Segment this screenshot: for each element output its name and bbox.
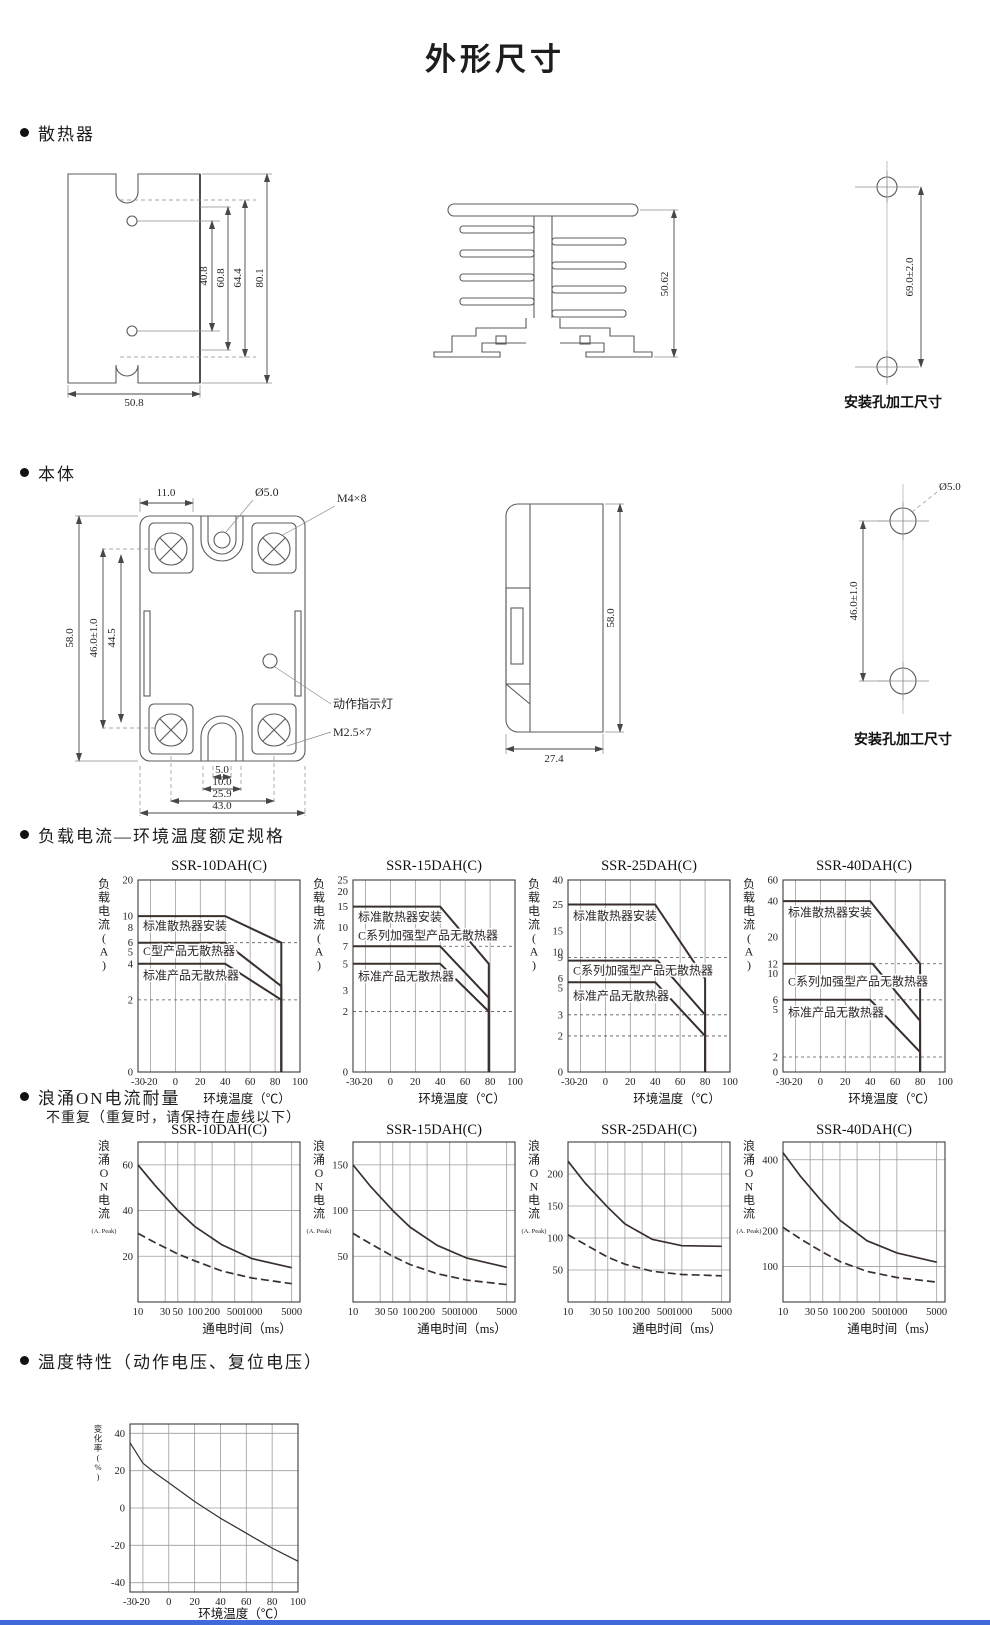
y-tick-label: 20	[123, 876, 134, 887]
x-tick-label: 80	[700, 1077, 711, 1088]
x-tick-label: 5000	[496, 1307, 517, 1318]
y-tick-label: 40	[123, 1206, 134, 1217]
page-bottom-border	[0, 1620, 990, 1625]
x-tick-label: 1000	[241, 1307, 262, 1318]
x-tick-label: 100	[402, 1307, 418, 1318]
y-axis-label-char: (	[97, 1453, 100, 1463]
bullet-icon	[20, 1356, 29, 1365]
x-tick-label: 500	[442, 1307, 458, 1318]
page-title: 外形尺寸	[0, 34, 990, 79]
y-axis-label-char: 流	[528, 918, 540, 932]
y-tick-label: 150	[547, 1202, 563, 1213]
x-tick-label: 100	[187, 1307, 203, 1318]
x-tick-label: -20	[136, 1597, 150, 1608]
x-tick-label: 80	[270, 1077, 281, 1088]
y-tick-label: 40	[553, 876, 564, 887]
y-tick-label: 10	[338, 923, 349, 934]
y-axis-label-char: 流	[743, 918, 755, 932]
x-tick-label: 200	[634, 1307, 650, 1318]
y-axis-label-char: )	[532, 958, 536, 972]
series-label: 标准散热器安装	[143, 918, 227, 933]
x-axis-label: 环境温度（℃）	[198, 1606, 286, 1621]
y-axis-label-char: 化	[94, 1434, 103, 1444]
dim-58-0: 58.0	[64, 628, 76, 648]
x-tick-label: 30	[590, 1307, 601, 1318]
section-load: 负载电流—环境温度额定规格	[20, 822, 285, 847]
y-axis-label-char: 流	[313, 918, 325, 932]
series-line	[130, 1443, 298, 1562]
y-tick-label: 400	[762, 1155, 778, 1166]
x-tick-label: 200	[419, 1307, 435, 1318]
y-axis-label-char: 电	[743, 1193, 755, 1207]
x-axis-label: 环境温度（℃）	[203, 1091, 291, 1106]
y-axis-label-char: 电	[98, 1193, 110, 1207]
y-tick-label: -20	[111, 1541, 125, 1552]
x-axis-label: 环境温度（℃）	[848, 1091, 936, 1106]
y-axis-label-char: N	[100, 1180, 109, 1194]
chart-temp-characteristic: -30-2002040608010040200-20-40环境温度（℃）变化率(…	[58, 1400, 368, 1625]
bullet-icon	[20, 468, 29, 477]
dim-44-5: 44.5	[106, 628, 118, 648]
chart-load-ssr40: 标准散热器安装C系列加强型产品无散热器标准产品无散热器-30-200204060…	[733, 856, 953, 1116]
y-axis-label-sub: (A. Peak)	[737, 1228, 762, 1235]
heatsink-front-drawing: 40.8 60.8 64.4 80.1 50.8	[60, 156, 290, 408]
x-tick-label: 60	[460, 1077, 471, 1088]
chart-canvas: 标准散热器安装C系列加强型产品无散热器标准产品无散热器-30-200204060…	[733, 856, 953, 1116]
series-label: 标准产品无散热器	[788, 1005, 884, 1020]
x-tick-label: 500	[657, 1307, 673, 1318]
y-axis-label-char: 流	[98, 918, 110, 932]
x-tick-label: 100	[832, 1307, 848, 1318]
dim-50-8: 50.8	[124, 397, 144, 408]
y-tick-label: 60	[768, 876, 779, 887]
holes-caption: 安装孔加工尺寸	[854, 731, 952, 748]
section-surge: 浪涌ON电流耐量	[20, 1084, 181, 1109]
dim-43-0: 43.0	[212, 800, 232, 812]
x-tick-label: 60	[675, 1077, 686, 1088]
body-front-drawing: Ø5.0 M4×8 11.0 58.0 46.0±1.0 44.5 动作指示灯 …	[45, 476, 400, 821]
y-tick-label: -40	[111, 1578, 125, 1589]
y-tick-label: 50	[338, 1252, 349, 1263]
body-holes-drawing: Ø5.0 46.0±1.0 安装孔加工尺寸	[815, 476, 985, 758]
bullet-icon	[20, 1092, 29, 1101]
y-axis-label-char: 流	[528, 1207, 540, 1221]
chart-title: SSR-25DAH(C)	[601, 858, 697, 874]
series-label: C系列加强型产品无散热器	[573, 963, 713, 978]
y-axis-label-char: 载	[743, 891, 755, 905]
y-tick-label: 10	[768, 969, 779, 980]
x-tick-label: 60	[890, 1077, 901, 1088]
chart-canvas: -30-2002040608010040200-20-40环境温度（℃）变化率(…	[58, 1400, 368, 1625]
y-tick-label: 60	[123, 1160, 134, 1171]
y-axis-label-char: 电	[528, 1193, 540, 1207]
y-tick-label: 5	[343, 959, 348, 970]
x-tick-label: 20	[840, 1077, 851, 1088]
x-axis-label: 通电时间（ms）	[847, 1322, 937, 1336]
series-label: 标准产品无散热器	[573, 988, 669, 1003]
series-label: C型产品无散热器	[143, 943, 235, 958]
series-label: C系列加强型产品无散热器	[358, 928, 498, 943]
section-surge-label: 浪涌ON电流耐量	[38, 1084, 181, 1109]
y-tick-label: 20	[123, 1252, 134, 1263]
y-tick-label: 40	[768, 897, 779, 908]
datasheet-page: 外形尺寸 散热器 40.8 60.8 64.4 80.1 50.8	[0, 0, 990, 1625]
y-tick-label: 5	[558, 984, 563, 995]
chart-title: SSR-10DAH(C)	[171, 1122, 267, 1138]
label-m2-5x7: M2.5×7	[333, 725, 371, 739]
chart-canvas: 标准散热器安装C型产品无散热器标准产品无散热器-30-2002040608010…	[88, 856, 308, 1116]
y-axis-label-char: N	[745, 1180, 754, 1194]
y-tick-label: 3	[558, 1010, 563, 1021]
y-tick-label: 50	[553, 1266, 564, 1277]
y-axis-label-char: A	[530, 945, 539, 959]
series-label: 标准散热器安装	[573, 908, 657, 923]
dim-25-9: 25.9	[212, 788, 232, 800]
y-tick-label: 0	[128, 1068, 133, 1079]
chart-load-ssr25: 标准散热器安装C系列加强型产品无散热器标准产品无散热器-30-200204060…	[518, 856, 738, 1116]
y-axis-label-char: )	[102, 958, 106, 972]
y-axis-label-char: 流	[743, 1207, 755, 1221]
x-tick-label: 60	[245, 1077, 256, 1088]
y-axis-label-char: 变	[94, 1424, 103, 1434]
x-tick-label: 500	[227, 1307, 243, 1318]
series-label: 标准产品无散热器	[143, 967, 239, 982]
x-tick-label: 0	[388, 1077, 393, 1088]
chart-canvas: 10305010020050010005000400200100SSR-40DA…	[733, 1120, 953, 1370]
y-tick-label: 200	[547, 1170, 563, 1181]
x-tick-label: -20	[788, 1077, 802, 1088]
mount-hole-top	[127, 216, 137, 226]
section-load-label: 负载电流—环境温度额定规格	[38, 822, 285, 847]
chart-canvas: 10305010020050010005000604020SSR-10DAH(C…	[88, 1120, 308, 1370]
y-axis-label-char: 流	[98, 1207, 110, 1221]
y-axis-label-char: 负	[743, 877, 755, 891]
y-axis-label-char: O	[100, 1166, 109, 1180]
x-axis-label: 通电时间（ms）	[632, 1322, 722, 1336]
y-axis-label-char: 浪	[313, 1138, 325, 1153]
y-axis-label-char: (	[102, 931, 106, 945]
chart-canvas: 1030501002005001000500015010050SSR-15DAH…	[303, 1120, 523, 1370]
x-tick-label: 1000	[671, 1307, 692, 1318]
dim-64-4: 64.4	[232, 268, 244, 288]
y-axis-label-char: )	[97, 1472, 100, 1482]
y-tick-label: 2	[128, 995, 133, 1006]
x-tick-label: 500	[872, 1307, 888, 1318]
x-tick-label: 40	[650, 1077, 661, 1088]
indicator-lamp	[263, 654, 277, 668]
y-tick-label: 15	[338, 902, 349, 913]
y-axis-label-char: O	[530, 1166, 539, 1180]
series-line	[138, 1165, 292, 1268]
y-axis-label-char: 浪	[528, 1138, 540, 1153]
y-axis-label-char: 电	[743, 904, 755, 918]
dim-69-0: 69.0±2.0	[904, 257, 916, 297]
x-tick-label: 20	[625, 1077, 636, 1088]
y-tick-label: 15	[553, 927, 564, 938]
dim-50-62: 50.62	[659, 272, 671, 297]
x-tick-label: 5000	[711, 1307, 732, 1318]
x-tick-label: 50	[603, 1307, 614, 1318]
y-axis-label-char: 载	[528, 891, 540, 905]
dim-58-0-side: 58.0	[605, 608, 617, 628]
y-tick-label: 0	[120, 1504, 125, 1515]
x-tick-label: 5000	[281, 1307, 302, 1318]
chart-load-ssr15: 标准散热器安装C系列加强型产品无散热器标准产品无散热器-30-200204060…	[303, 856, 523, 1116]
label-m4x8: M4×8	[337, 491, 366, 505]
y-tick-label: 100	[332, 1206, 348, 1217]
y-axis-label-char: 负	[313, 877, 325, 891]
y-tick-label: 40	[115, 1429, 126, 1440]
chart-surge-ssr10: 10305010020050010005000604020SSR-10DAH(C…	[88, 1120, 308, 1370]
y-axis-label-char: A	[315, 945, 324, 959]
section-heatsink-label: 散热器	[38, 120, 95, 145]
chart-surge-ssr40: 10305010020050010005000400200100SSR-40DA…	[733, 1120, 953, 1370]
series-label: 标准散热器安装	[788, 905, 872, 920]
y-tick-label: 20	[115, 1466, 126, 1477]
x-tick-label: 0	[166, 1597, 171, 1608]
chart-title: SSR-10DAH(C)	[171, 858, 267, 874]
y-tick-label: 2	[343, 1007, 348, 1018]
x-tick-label: 0	[603, 1077, 608, 1088]
top-slot-hole	[214, 532, 230, 548]
y-axis-label-char: 涌	[743, 1153, 755, 1167]
y-axis-label-char: 率	[94, 1443, 103, 1453]
y-axis-label-char: 电	[313, 1193, 325, 1207]
chart-title: SSR-40DAH(C)	[816, 858, 912, 874]
label-indicator: 动作指示灯	[333, 696, 393, 711]
series-line	[353, 1165, 507, 1267]
y-axis-label-char: N	[315, 1180, 324, 1194]
dim-46-0: 46.0±1.0	[88, 618, 100, 658]
y-axis-label-char: %	[94, 1462, 101, 1472]
chart-title: SSR-40DAH(C)	[816, 1122, 912, 1138]
y-axis-label-char: 电	[98, 904, 110, 918]
terminal-screws	[149, 523, 296, 754]
label-hole-dia: Ø5.0	[939, 481, 961, 493]
y-tick-label: 0	[773, 1068, 778, 1079]
x-tick-label: 10	[348, 1307, 359, 1318]
x-tick-label: 50	[818, 1307, 829, 1318]
body-side-drawing: 58.0 27.4	[478, 492, 638, 764]
y-tick-label: 3	[343, 986, 348, 997]
y-tick-label: 5	[128, 948, 133, 959]
series-label: C系列加强型产品无散热器	[788, 974, 928, 989]
x-tick-label: 100	[937, 1077, 953, 1088]
chart-surge-ssr15: 1030501002005001000500015010050SSR-15DAH…	[303, 1120, 523, 1370]
x-tick-label: 0	[818, 1077, 823, 1088]
y-tick-label: 0	[558, 1068, 563, 1079]
dim-5-0: 5.0	[215, 764, 229, 776]
y-tick-label: 10	[123, 912, 134, 923]
x-tick-label: 40	[865, 1077, 876, 1088]
y-tick-label: 2	[558, 1031, 563, 1042]
dim-40-8: 40.8	[198, 266, 210, 286]
x-tick-label: 20	[410, 1077, 421, 1088]
x-tick-label: 10	[133, 1307, 144, 1318]
dim-27-4: 27.4	[544, 753, 564, 764]
x-tick-label: 50	[388, 1307, 399, 1318]
y-axis-label-char: 浪	[743, 1138, 755, 1153]
chart-canvas: 标准散热器安装C系列加强型产品无散热器标准产品无散热器-30-200204060…	[518, 856, 738, 1116]
x-tick-label: 80	[915, 1077, 926, 1088]
dim-80-1: 80.1	[254, 268, 266, 287]
x-tick-label: 1000	[886, 1307, 907, 1318]
mount-hole-bottom	[127, 326, 137, 336]
x-tick-label: 200	[849, 1307, 865, 1318]
y-tick-label: 25	[338, 876, 349, 887]
x-tick-label: 80	[485, 1077, 496, 1088]
x-tick-label: 50	[173, 1307, 184, 1318]
y-axis-label-char: )	[747, 958, 751, 972]
dim-10-0: 10.0	[212, 776, 232, 788]
y-tick-label: 20	[338, 887, 349, 898]
y-tick-label: 8	[128, 923, 133, 934]
y-axis-label-char: 负	[528, 877, 540, 891]
series-line	[783, 1153, 937, 1263]
y-axis-label-char: 电	[528, 904, 540, 918]
series-line	[138, 916, 281, 1072]
label-hole-dia: Ø5.0	[255, 485, 279, 499]
dim-11-0: 11.0	[157, 487, 176, 499]
heatsink-holes-drawing: 69.0±2.0 安装孔加工尺寸	[815, 155, 975, 415]
y-axis-label-char: (	[317, 931, 321, 945]
x-tick-label: 30	[160, 1307, 171, 1318]
bullet-icon	[20, 128, 29, 137]
y-tick-label: 100	[762, 1262, 778, 1273]
x-tick-label: -20	[573, 1077, 587, 1088]
y-axis-label-char: 载	[98, 891, 110, 905]
y-axis-label-char: 涌	[313, 1153, 325, 1167]
chart-title: SSR-15DAH(C)	[386, 858, 482, 874]
x-tick-label: -20	[358, 1077, 372, 1088]
y-axis-label-sub: (A. Peak)	[307, 1228, 332, 1235]
y-axis-label-char: (	[747, 931, 751, 945]
y-axis-label-char: 浪	[98, 1138, 110, 1153]
y-axis-label-sub: (A. Peak)	[92, 1228, 117, 1235]
dim-46-0: 46.0±1.0	[848, 581, 860, 621]
chart-canvas: 1030501002005001000500020015010050SSR-25…	[518, 1120, 738, 1370]
x-axis-label: 环境温度（℃）	[633, 1091, 721, 1106]
y-tick-label: 100	[547, 1234, 563, 1245]
series-label: 标准散热器安装	[358, 909, 442, 924]
bullet-icon	[20, 830, 29, 839]
y-axis-label-char: A	[100, 945, 109, 959]
y-axis-label-char: (	[532, 931, 536, 945]
y-tick-label: 20	[768, 933, 779, 944]
y-axis-label-char: 负	[98, 877, 110, 891]
dim-60-8: 60.8	[215, 268, 227, 288]
y-axis-label-char: A	[745, 945, 754, 959]
y-axis-label-sub: (A. Peak)	[522, 1228, 547, 1235]
chart-surge-ssr25: 1030501002005001000500020015010050SSR-25…	[518, 1120, 738, 1370]
series-line	[138, 943, 281, 1072]
x-tick-label: 1000	[456, 1307, 477, 1318]
x-tick-label: 30	[375, 1307, 386, 1318]
chart-title: SSR-25DAH(C)	[601, 1122, 697, 1138]
x-axis-label: 通电时间（ms）	[417, 1322, 507, 1336]
heatsink-side-drawing: 50.62	[430, 196, 700, 371]
y-tick-label: 4	[128, 959, 134, 970]
section-heatsink: 散热器	[20, 120, 95, 145]
heatsink-fins	[460, 226, 626, 317]
section-temp: 温度特性（动作电压、复位电压）	[20, 1348, 323, 1373]
y-tick-label: 7	[343, 942, 348, 953]
x-tick-label: -30	[123, 1597, 137, 1608]
x-tick-label: 20	[195, 1077, 206, 1088]
y-tick-label: 2	[773, 1053, 778, 1064]
x-tick-label: 40	[435, 1077, 446, 1088]
y-axis-label-char: 流	[313, 1207, 325, 1221]
x-axis-label: 环境温度（℃）	[418, 1091, 506, 1106]
y-tick-label: 9	[558, 953, 563, 964]
x-tick-label: 100	[290, 1597, 306, 1608]
y-axis-label-char: )	[317, 958, 321, 972]
y-axis-label-char: 涌	[528, 1153, 540, 1167]
chart-title: SSR-15DAH(C)	[386, 1122, 482, 1138]
y-axis-label-char: 涌	[98, 1153, 110, 1167]
y-tick-label: 200	[762, 1226, 778, 1237]
series-line	[353, 946, 489, 1072]
series-label: 标准产品无散热器	[358, 969, 454, 984]
x-tick-label: 10	[778, 1307, 789, 1318]
x-axis-label: 通电时间（ms）	[202, 1322, 292, 1336]
y-tick-label: 25	[553, 900, 564, 911]
x-tick-label: 10	[563, 1307, 574, 1318]
section-temp-label: 温度特性（动作电压、复位电压）	[38, 1348, 323, 1373]
y-axis-label-char: O	[315, 1166, 324, 1180]
x-tick-label: 100	[617, 1307, 633, 1318]
y-axis-label-char: 载	[313, 891, 325, 905]
x-tick-label: 5000	[926, 1307, 947, 1318]
holes-caption: 安装孔加工尺寸	[844, 394, 942, 411]
y-tick-label: 0	[343, 1068, 348, 1079]
x-tick-label: 40	[220, 1077, 231, 1088]
x-tick-label: 30	[805, 1307, 816, 1318]
y-tick-label: 5	[773, 1005, 778, 1016]
chart-load-ssr10: 标准散热器安装C型产品无散热器标准产品无散热器-30-2002040608010…	[88, 856, 308, 1116]
y-axis-label-char: N	[530, 1180, 539, 1194]
y-axis-label-char: O	[745, 1166, 754, 1180]
y-tick-label: 150	[332, 1160, 348, 1171]
x-tick-label: 200	[204, 1307, 220, 1318]
chart-canvas: 标准散热器安装C系列加强型产品无散热器标准产品无散热器-30-200204060…	[303, 856, 523, 1116]
y-axis-label-char: 电	[313, 904, 325, 918]
